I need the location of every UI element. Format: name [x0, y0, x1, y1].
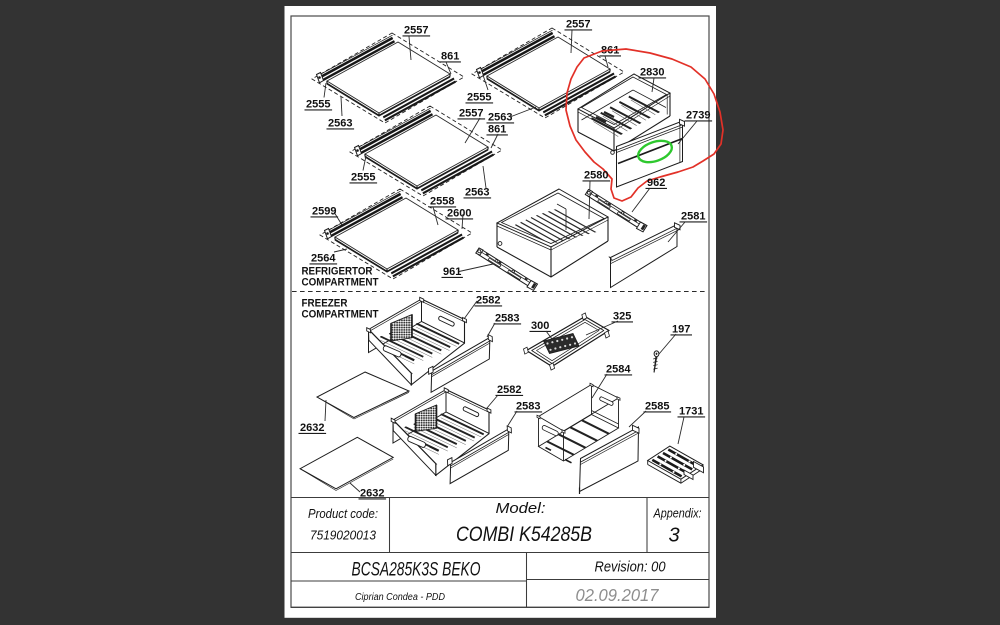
svg-text:Revision: 00: Revision: 00 — [595, 560, 666, 576]
svg-text:3: 3 — [668, 525, 679, 547]
svg-text:Product code:: Product code: — [308, 506, 378, 521]
svg-text:2555: 2555 — [351, 172, 375, 184]
svg-text:COMBI K54285B: COMBI K54285B — [456, 522, 592, 546]
svg-text:2558: 2558 — [430, 196, 454, 208]
svg-text:2582: 2582 — [476, 295, 500, 307]
svg-text:861: 861 — [488, 124, 506, 136]
svg-text:2830: 2830 — [640, 67, 664, 79]
svg-text:Model:: Model: — [496, 500, 546, 517]
svg-text:197: 197 — [672, 324, 690, 336]
svg-text:2585: 2585 — [645, 401, 669, 413]
svg-text:2555: 2555 — [467, 92, 491, 104]
svg-text:COMPARTMENT: COMPARTMENT — [302, 277, 379, 289]
svg-text:2739: 2739 — [686, 110, 710, 122]
svg-text:1731: 1731 — [679, 406, 703, 418]
svg-text:2600: 2600 — [447, 208, 471, 220]
svg-text:2564: 2564 — [311, 253, 336, 265]
svg-text:7519020013: 7519020013 — [310, 528, 377, 543]
svg-text:861: 861 — [441, 51, 459, 63]
svg-text:2557: 2557 — [404, 25, 428, 37]
svg-text:2563: 2563 — [328, 118, 352, 130]
svg-text:962: 962 — [647, 177, 665, 189]
svg-text:2557: 2557 — [459, 108, 483, 120]
svg-text:300: 300 — [531, 320, 549, 332]
svg-text:02.09.2017: 02.09.2017 — [576, 585, 660, 605]
svg-text:2583: 2583 — [495, 313, 519, 325]
svg-text:2581: 2581 — [681, 211, 705, 223]
svg-text:2563: 2563 — [465, 187, 489, 199]
svg-text:2563: 2563 — [488, 112, 512, 124]
svg-text:BCSA285K3S BEKO: BCSA285K3S BEKO — [352, 560, 481, 581]
svg-text:2599: 2599 — [312, 206, 336, 218]
svg-text:2557: 2557 — [566, 19, 590, 31]
svg-text:Appendix:: Appendix: — [653, 507, 702, 521]
svg-text:2555: 2555 — [306, 99, 330, 111]
svg-text:2580: 2580 — [584, 170, 608, 182]
svg-text:2632: 2632 — [300, 422, 324, 434]
svg-text:COMPARTMENT: COMPARTMENT — [302, 309, 379, 321]
svg-text:325: 325 — [613, 311, 631, 323]
svg-text:2583: 2583 — [516, 401, 540, 413]
svg-text:2582: 2582 — [497, 384, 521, 396]
svg-text:2584: 2584 — [606, 364, 631, 376]
svg-text:Ciprian Condea - PDD: Ciprian Condea - PDD — [355, 592, 445, 603]
svg-text:961: 961 — [443, 266, 461, 278]
